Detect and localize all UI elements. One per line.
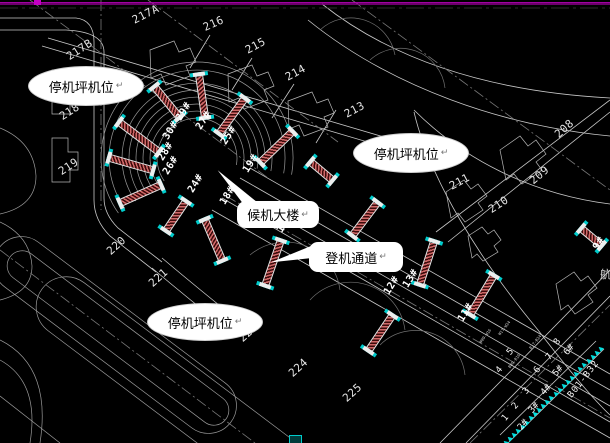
text-return-mark: ↵	[116, 81, 124, 91]
text-return-mark: ↵	[301, 210, 309, 220]
text-return-mark: ↵	[379, 252, 387, 262]
text-return-mark: ↵	[441, 148, 449, 158]
text-return-mark: ↵	[235, 317, 243, 327]
callout-terminal-text: 候机大楼	[247, 205, 299, 224]
sheet-border-tick	[34, 0, 41, 5]
cad-drawing-canvas[interactable]: 217A217B21621521421321821922022122322422…	[0, 0, 610, 443]
cyan-marker	[289, 435, 302, 443]
callout-boarding-text: 登机通道	[325, 248, 377, 267]
callout-apron-top-left[interactable]: 停机坪机位 ↵	[28, 66, 144, 106]
callout-apron-right[interactable]: 停机坪机位 ↵	[353, 133, 469, 173]
callout-boarding[interactable]: 登机通道 ↵	[309, 242, 403, 272]
callout-apron-bottom[interactable]: 停机坪机位 ↵	[147, 303, 263, 341]
sheet-border-line	[0, 2, 610, 5]
callout-apron-top-left-text: 停机坪机位	[49, 77, 114, 96]
callout-apron-bottom-text: 停机坪机位	[168, 313, 233, 332]
callout-apron-right-text: 停机坪机位	[374, 144, 439, 163]
callout-terminal[interactable]: 候机大楼 ↵	[237, 201, 319, 228]
edge-partial-text: 航	[600, 266, 610, 282]
